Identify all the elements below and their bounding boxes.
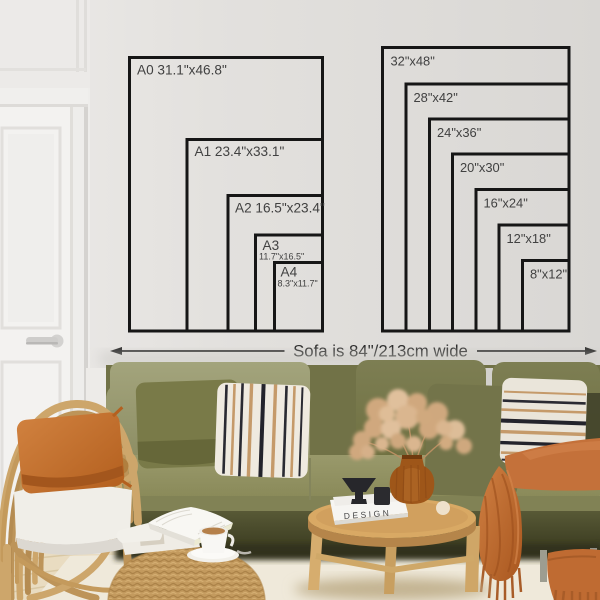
svg-text:16"x24": 16"x24" bbox=[484, 196, 529, 211]
svg-text:A2 16.5"x23.4": A2 16.5"x23.4" bbox=[235, 201, 325, 216]
svg-text:20"x30": 20"x30" bbox=[460, 160, 505, 175]
svg-text:12"x18": 12"x18" bbox=[507, 231, 552, 246]
svg-text:32"x48": 32"x48" bbox=[391, 54, 436, 69]
svg-text:A1 23.4"x33.1": A1 23.4"x33.1" bbox=[195, 144, 285, 159]
svg-text:24"x36": 24"x36" bbox=[437, 125, 482, 140]
svg-text:11.7"x16.5": 11.7"x16.5" bbox=[259, 252, 304, 262]
svg-text:A4: A4 bbox=[281, 265, 298, 280]
svg-text:8.3"x11.7": 8.3"x11.7" bbox=[278, 279, 318, 289]
svg-text:28"x42": 28"x42" bbox=[414, 90, 459, 105]
svg-text:8"x12": 8"x12" bbox=[530, 267, 568, 282]
svg-text:A0 31.1"x46.8": A0 31.1"x46.8" bbox=[137, 63, 227, 78]
